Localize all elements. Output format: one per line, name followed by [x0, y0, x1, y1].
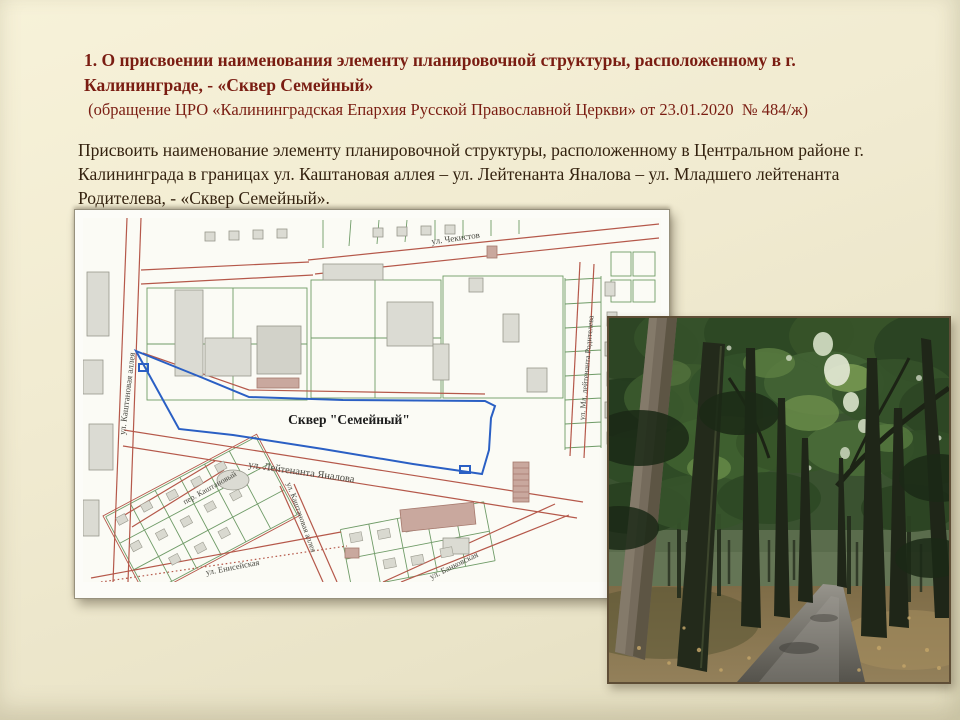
body-paragraph: Присвоить наименование элементу планиров… [78, 138, 884, 210]
square-name-label: Сквер "Семейный" [288, 412, 410, 427]
page-title: 1. О присвоении наименования элементу пл… [84, 48, 906, 98]
cadastral-map: ул. Чекистов ул. Каштановая аллея ул. Мл… [83, 218, 661, 582]
page-subtitle: (обращение ЦРО «Калининградская Епархия … [84, 99, 906, 122]
title-block: 1. О присвоении наименования элементу пл… [84, 48, 906, 121]
map-figure: ул. Чекистов ул. Каштановая аллея ул. Мл… [74, 209, 670, 599]
slide: 1. О присвоении наименования элементу пл… [0, 0, 960, 720]
park-photo-image [609, 318, 949, 682]
park-photo [607, 316, 951, 684]
